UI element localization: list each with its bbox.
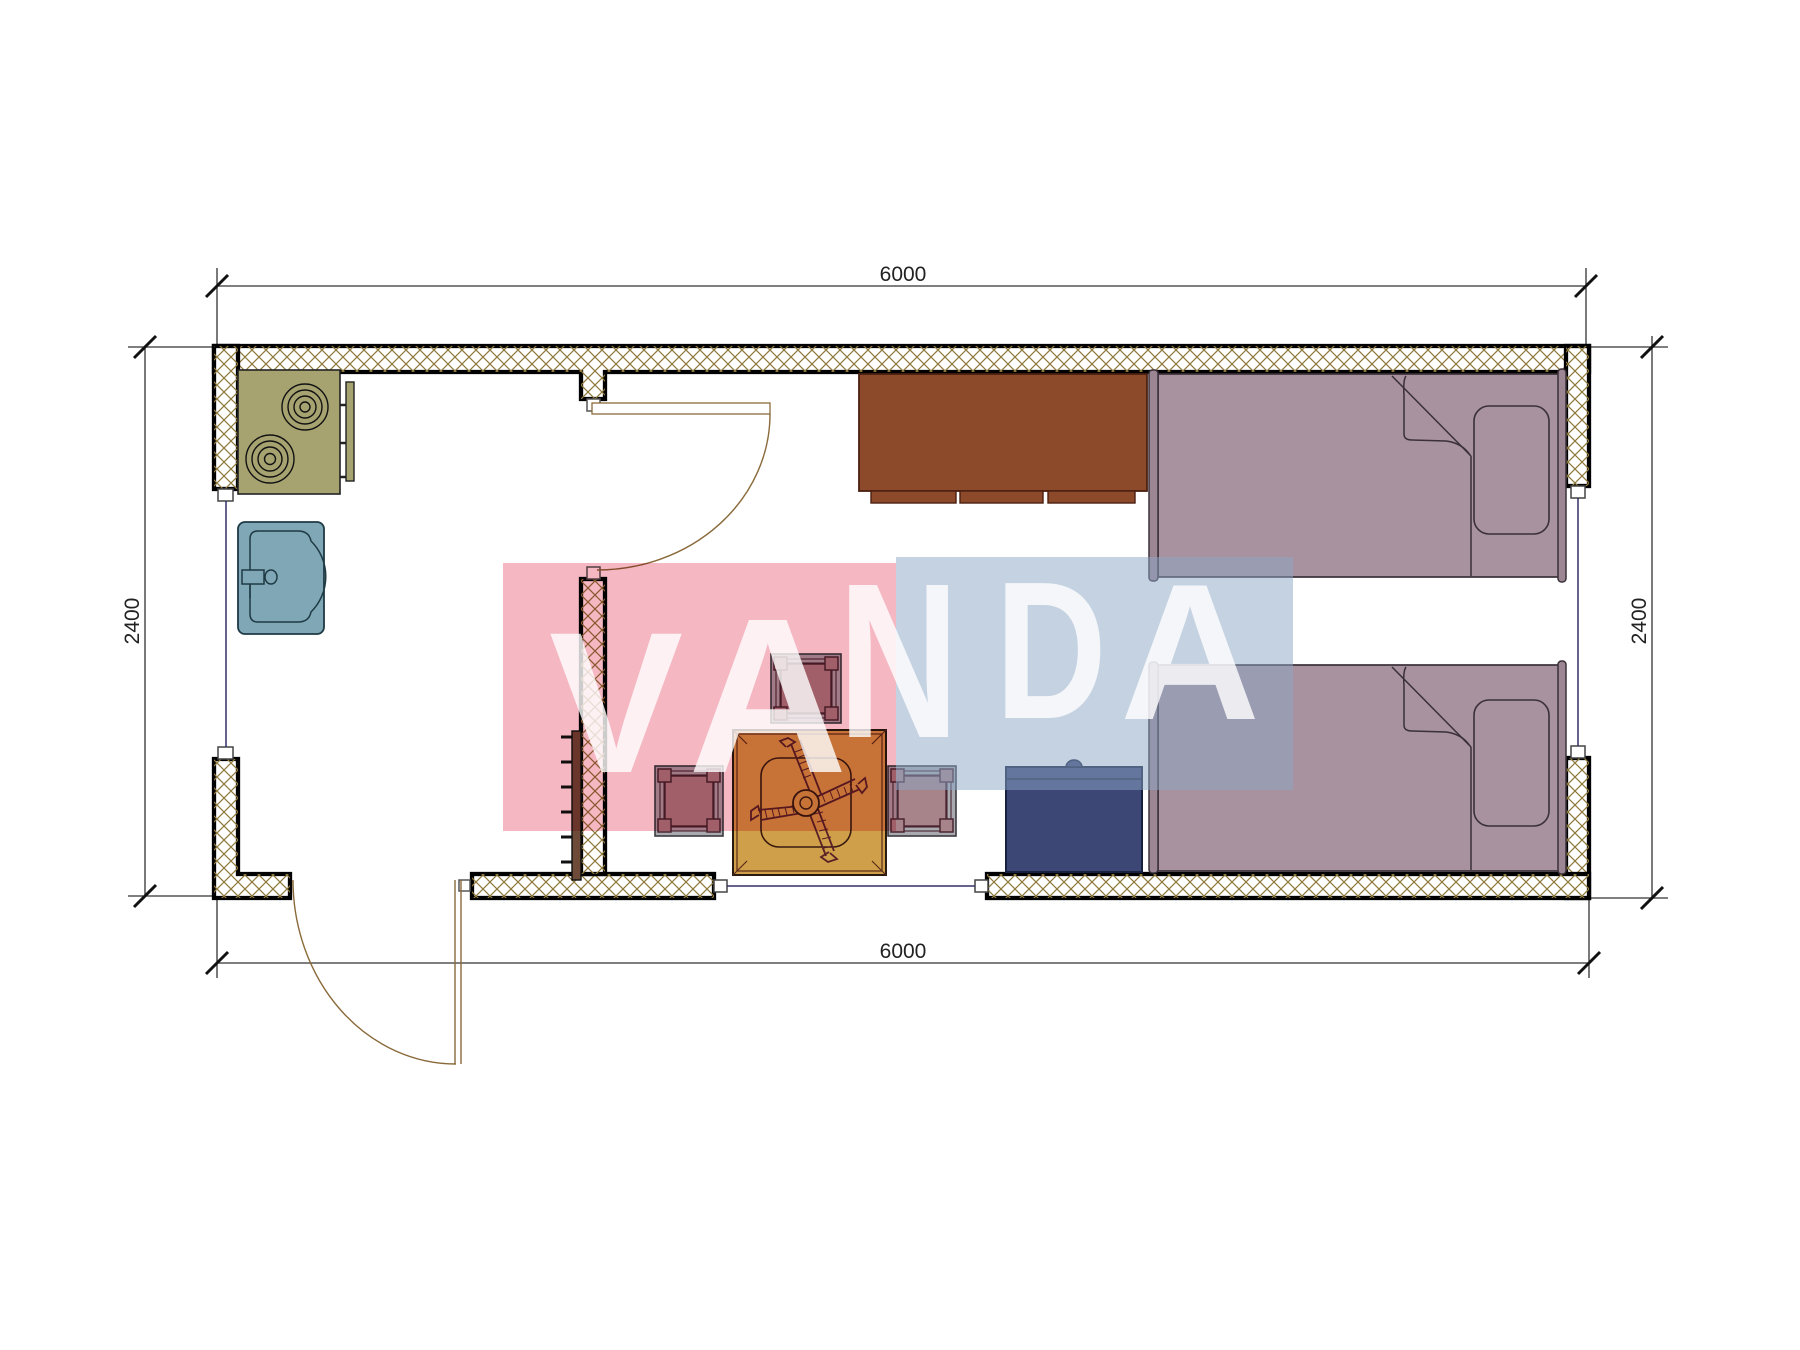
svg-text:2400: 2400 — [121, 598, 144, 645]
svg-text:V: V — [549, 590, 683, 815]
svg-text:2400: 2400 — [1628, 598, 1651, 645]
svg-text:A: A — [1120, 544, 1260, 761]
svg-text:A: A — [688, 572, 848, 819]
svg-text:N: N — [838, 537, 959, 785]
svg-text:6000: 6000 — [880, 263, 927, 286]
svg-text:D: D — [995, 542, 1107, 761]
svg-text:6000: 6000 — [880, 940, 927, 963]
